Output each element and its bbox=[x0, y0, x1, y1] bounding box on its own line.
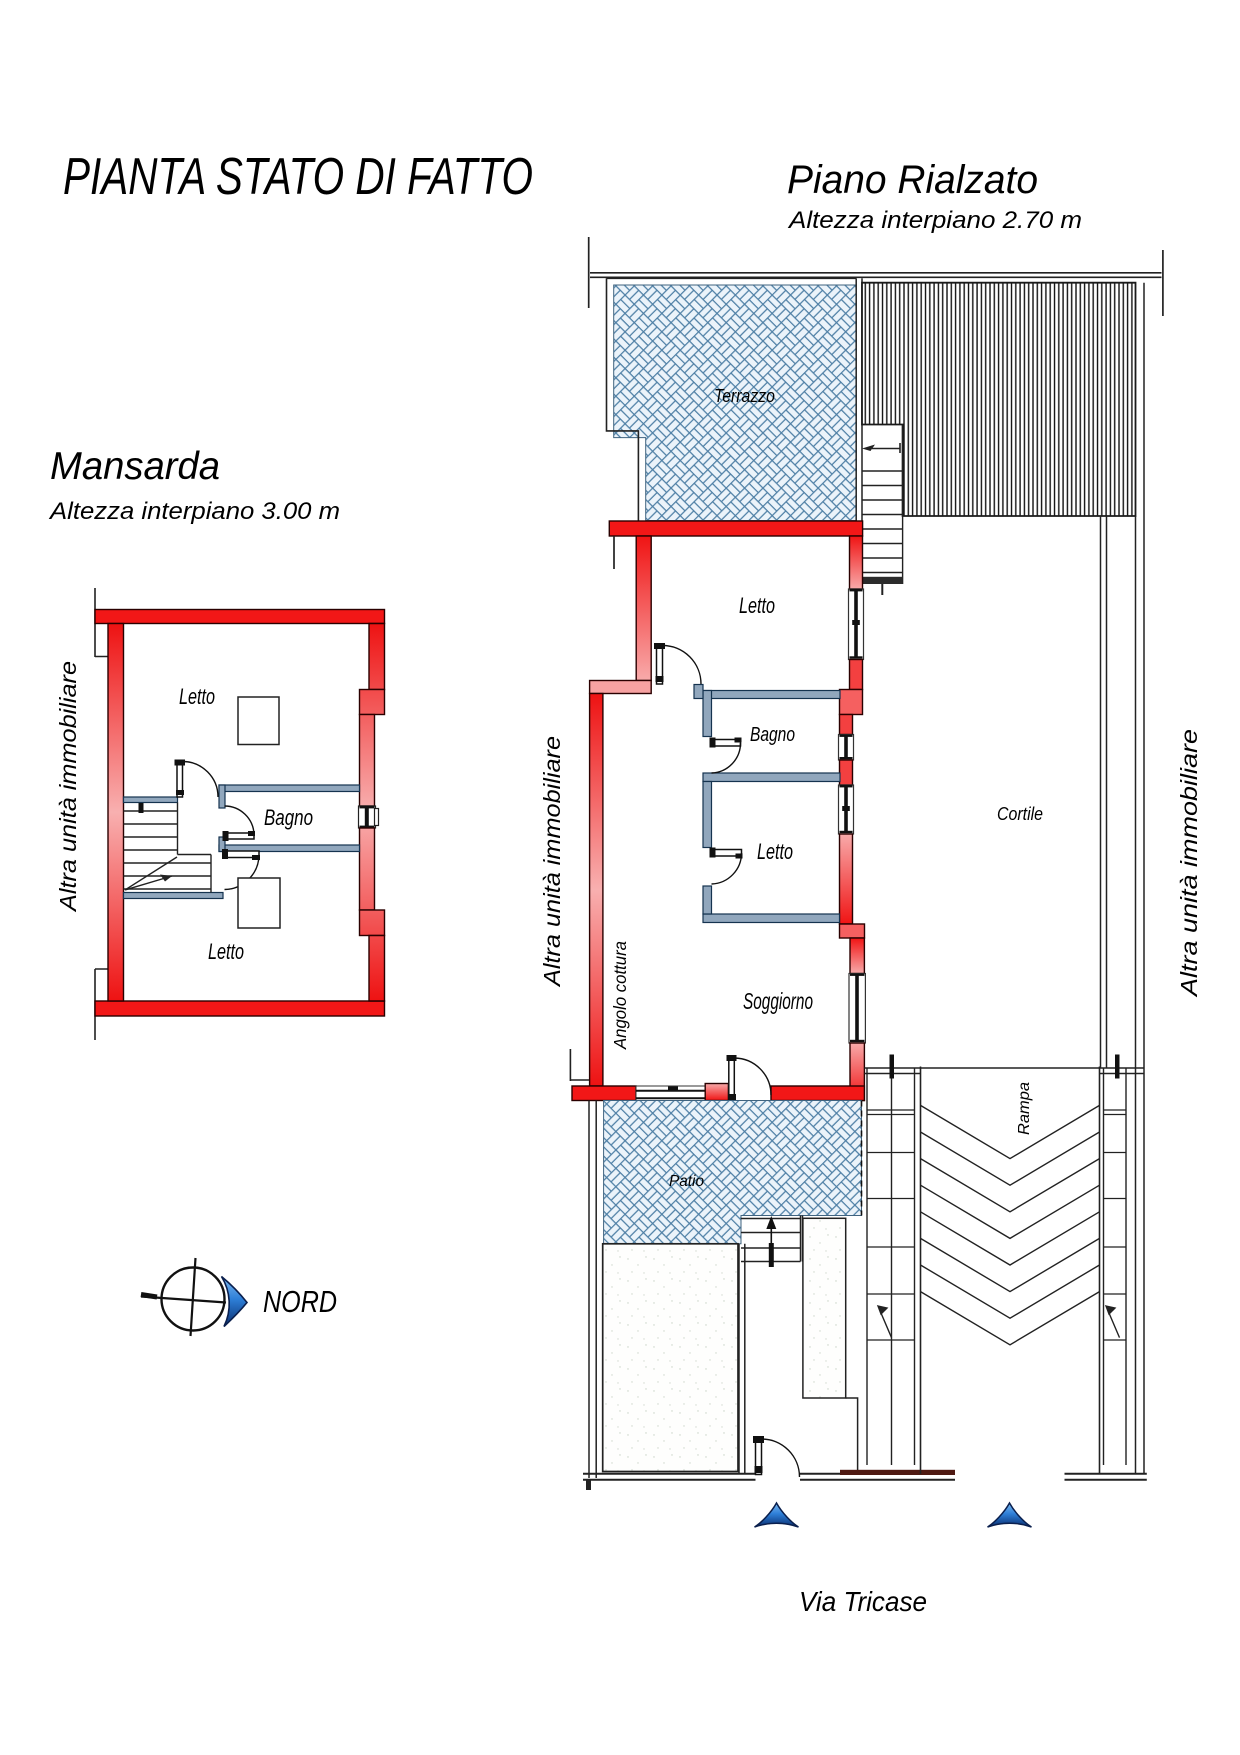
svg-text:Terrazzo: Terrazzo bbox=[714, 386, 775, 406]
svg-text:Bagno: Bagno bbox=[750, 724, 795, 746]
svg-text:Letto: Letto bbox=[208, 939, 244, 964]
svg-text:Angolo cottura: Angolo cottura bbox=[610, 941, 630, 1050]
svg-text:Altra unità immobiliare: Altra unità immobiliare bbox=[55, 661, 81, 913]
svg-text:Letto: Letto bbox=[757, 839, 793, 864]
svg-text:Via Tricase: Via Tricase bbox=[799, 1586, 927, 1617]
svg-text:Altra unità immobiliare: Altra unità immobiliare bbox=[1176, 729, 1202, 998]
svg-text:Altezza interpiano 3.00 m: Altezza interpiano 3.00 m bbox=[48, 498, 340, 525]
svg-text:Bagno: Bagno bbox=[264, 805, 313, 830]
svg-text:Altra unità immobiliare: Altra unità immobiliare bbox=[539, 736, 565, 988]
svg-text:Patio: Patio bbox=[669, 1173, 704, 1190]
svg-text:Altezza interpiano 2.70 m: Altezza interpiano 2.70 m bbox=[787, 207, 1082, 234]
svg-text:PIANTA STATO DI FATTO: PIANTA STATO DI FATTO bbox=[63, 148, 533, 206]
svg-text:Piano Rialzato: Piano Rialzato bbox=[787, 158, 1038, 202]
svg-text:Mansarda: Mansarda bbox=[50, 445, 220, 488]
svg-text:Letto: Letto bbox=[179, 684, 215, 709]
svg-text:Soggiorno: Soggiorno bbox=[743, 988, 813, 1014]
svg-text:Rampa: Rampa bbox=[1016, 1082, 1033, 1135]
svg-text:Cortile: Cortile bbox=[997, 804, 1043, 824]
svg-text:Letto: Letto bbox=[739, 593, 775, 618]
svg-text:NORD: NORD bbox=[263, 1284, 337, 1319]
